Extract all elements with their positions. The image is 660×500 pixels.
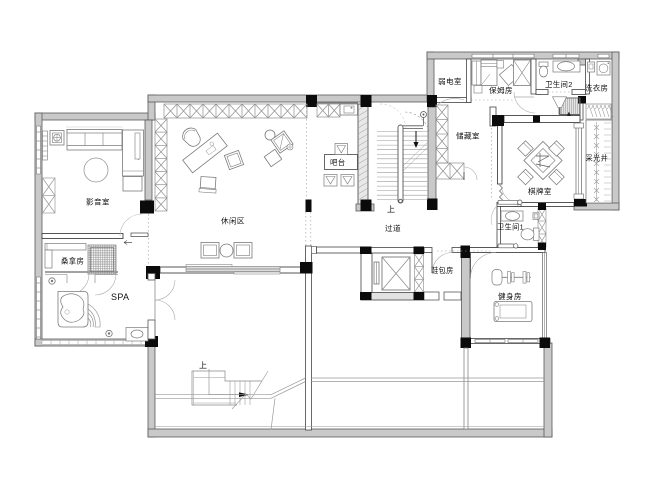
- svg-text:吧台: 吧台: [330, 158, 345, 167]
- svg-text:上: 上: [387, 205, 395, 214]
- svg-text:洗衣房: 洗衣房: [585, 84, 608, 93]
- svg-text:采光井: 采光井: [586, 154, 609, 163]
- svg-text:影音室: 影音室: [86, 197, 110, 207]
- svg-text:棋牌室: 棋牌室: [528, 186, 552, 196]
- svg-text:弱电室: 弱电室: [438, 76, 462, 86]
- svg-text:休闲区: 休闲区: [221, 216, 245, 226]
- svg-text:卫生间1: 卫生间1: [497, 223, 524, 232]
- svg-text:储藏室: 储藏室: [456, 131, 480, 141]
- svg-text:鞋包房: 鞋包房: [431, 266, 454, 275]
- svg-text:健身房: 健身房: [498, 291, 522, 301]
- svg-text:桑拿房: 桑拿房: [61, 257, 84, 266]
- svg-text:上: 上: [199, 361, 207, 370]
- svg-text:SPA: SPA: [111, 292, 129, 302]
- svg-text:保姆房: 保姆房: [489, 85, 513, 95]
- svg-text:过道: 过道: [385, 223, 401, 233]
- svg-text:卫生间2: 卫生间2: [545, 80, 573, 89]
